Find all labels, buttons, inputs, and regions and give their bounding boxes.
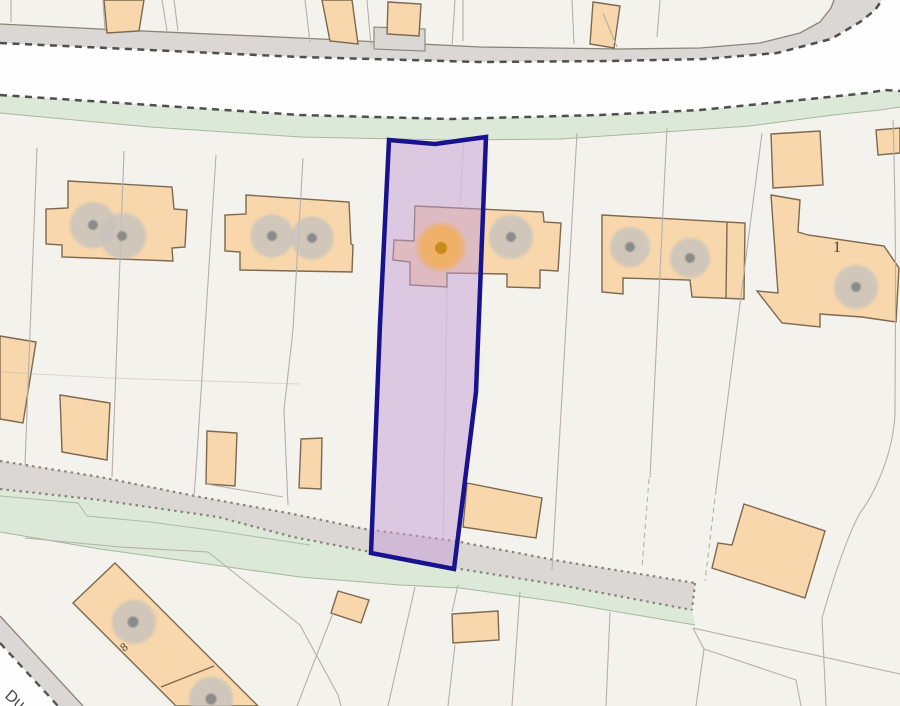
svg-text:1: 1 — [833, 239, 841, 256]
